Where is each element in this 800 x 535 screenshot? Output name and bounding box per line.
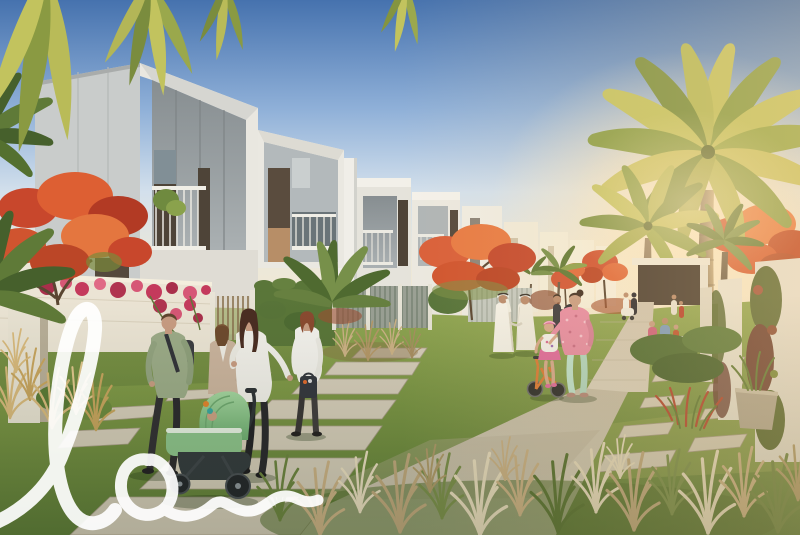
bottom-vignette <box>0 0 800 535</box>
render-canvas <box>0 0 800 535</box>
community-render: Sunlit rendering of a modern villa commu… <box>0 0 800 535</box>
